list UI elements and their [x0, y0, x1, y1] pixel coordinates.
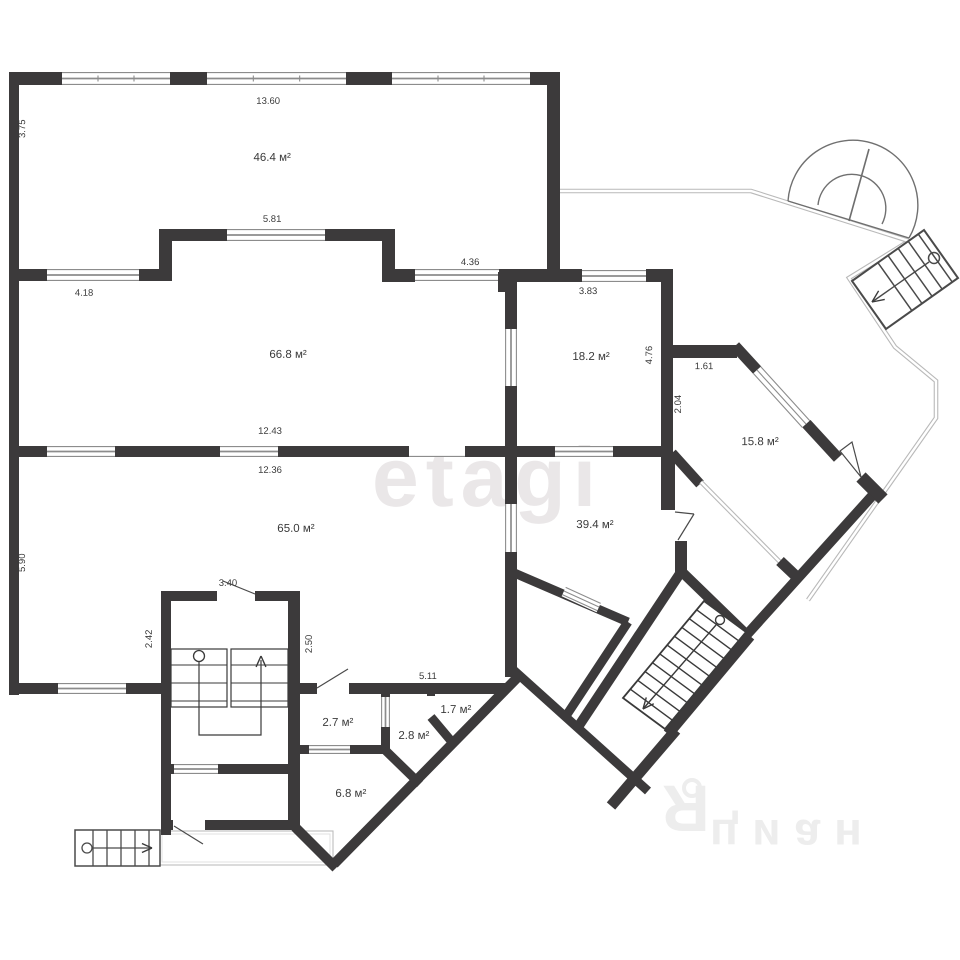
svg-text:12.43: 12.43: [258, 426, 282, 437]
svg-text:4.36: 4.36: [461, 257, 480, 268]
svg-text:18.2 м²: 18.2 м²: [572, 351, 609, 363]
svg-text:1.7 м²: 1.7 м²: [440, 704, 471, 716]
svg-text:65.0 м²: 65.0 м²: [277, 523, 314, 535]
svg-text:15.8 м²: 15.8 м²: [741, 436, 778, 448]
svg-text:циан: циан: [710, 810, 876, 862]
svg-text:5.81: 5.81: [263, 214, 282, 225]
svg-text:5.11: 5.11: [419, 671, 437, 682]
svg-text:2.50: 2.50: [304, 635, 315, 654]
svg-text:2.7 м²: 2.7 м²: [322, 717, 353, 729]
svg-text:2.42: 2.42: [144, 630, 155, 649]
svg-text:6.8 м²: 6.8 м²: [335, 788, 366, 800]
svg-text:12.36: 12.36: [258, 465, 282, 476]
svg-text:13.60: 13.60: [256, 96, 280, 107]
svg-text:4.18: 4.18: [75, 288, 94, 299]
svg-text:2.04: 2.04: [673, 395, 684, 414]
svg-text:3.75: 3.75: [17, 120, 28, 139]
svg-text:5.90: 5.90: [17, 554, 28, 573]
svg-text:2.8 м²: 2.8 м²: [398, 730, 429, 742]
svg-text:etagi: etagi: [372, 430, 603, 524]
svg-text:39.4 м²: 39.4 м²: [576, 519, 613, 531]
svg-text:3.40: 3.40: [219, 578, 238, 589]
svg-text:46.4 м²: 46.4 м²: [254, 152, 291, 164]
svg-text:4.76: 4.76: [644, 346, 655, 365]
svg-text:66.8 м²: 66.8 м²: [269, 349, 306, 361]
svg-text:3.83: 3.83: [579, 286, 598, 297]
svg-text:1.61: 1.61: [695, 361, 714, 372]
